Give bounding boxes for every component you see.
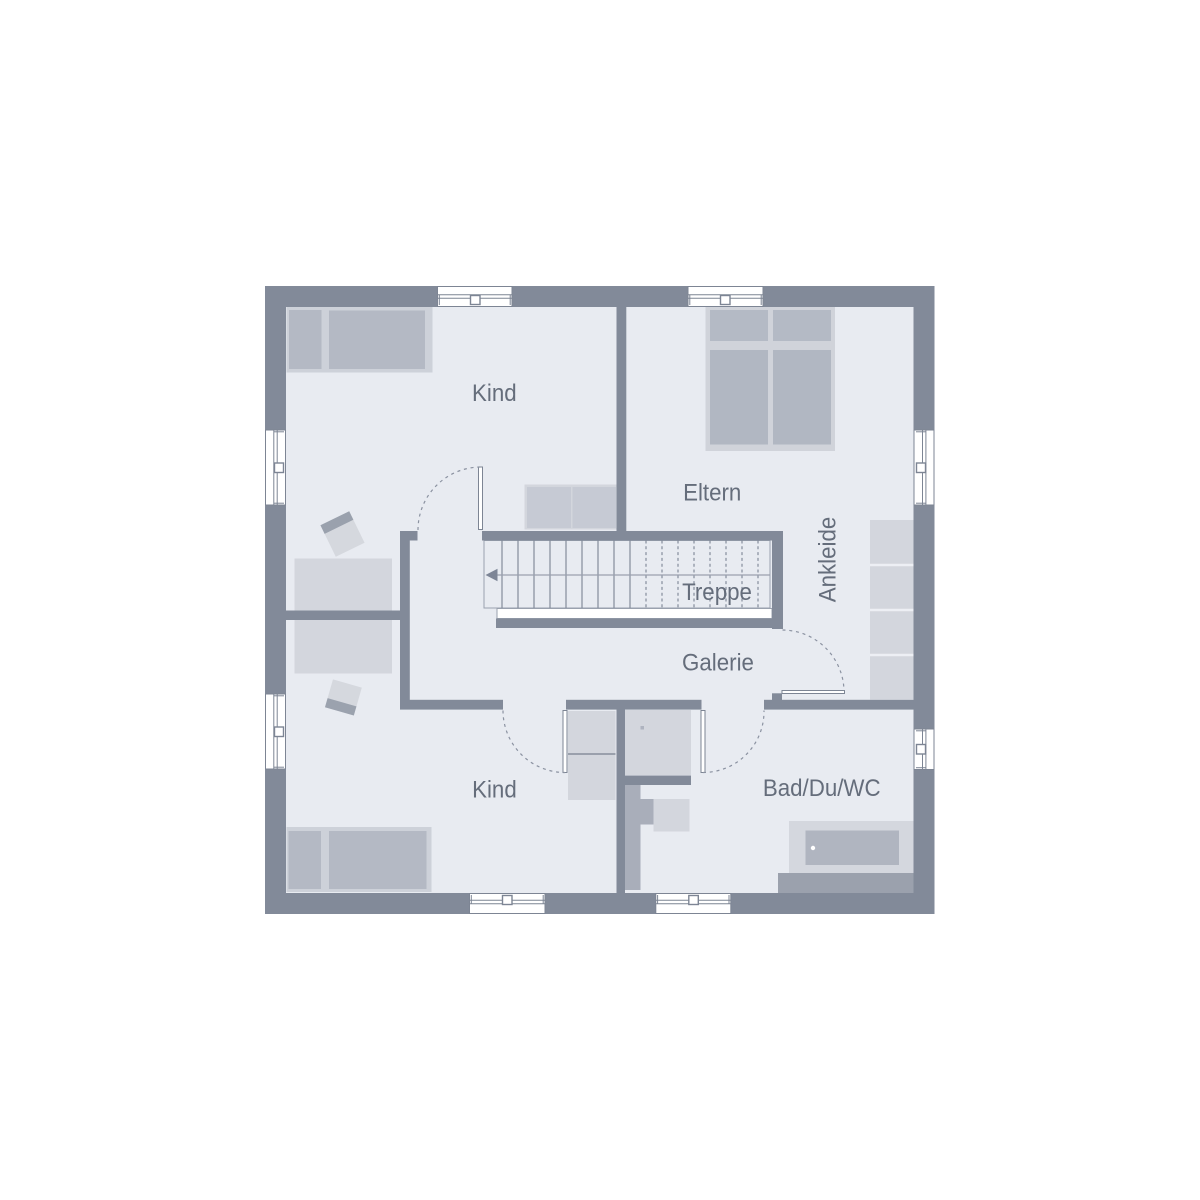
svg-text:Kind: Kind <box>472 776 517 803</box>
svg-text:Treppe: Treppe <box>682 578 752 605</box>
svg-text:Ankleide: Ankleide <box>814 517 841 603</box>
svg-text:Bad/Du/WC: Bad/Du/WC <box>763 774 881 801</box>
svg-text:Galerie: Galerie <box>682 649 754 676</box>
svg-text:Kind: Kind <box>472 379 517 406</box>
svg-text:Eltern: Eltern <box>683 479 741 506</box>
